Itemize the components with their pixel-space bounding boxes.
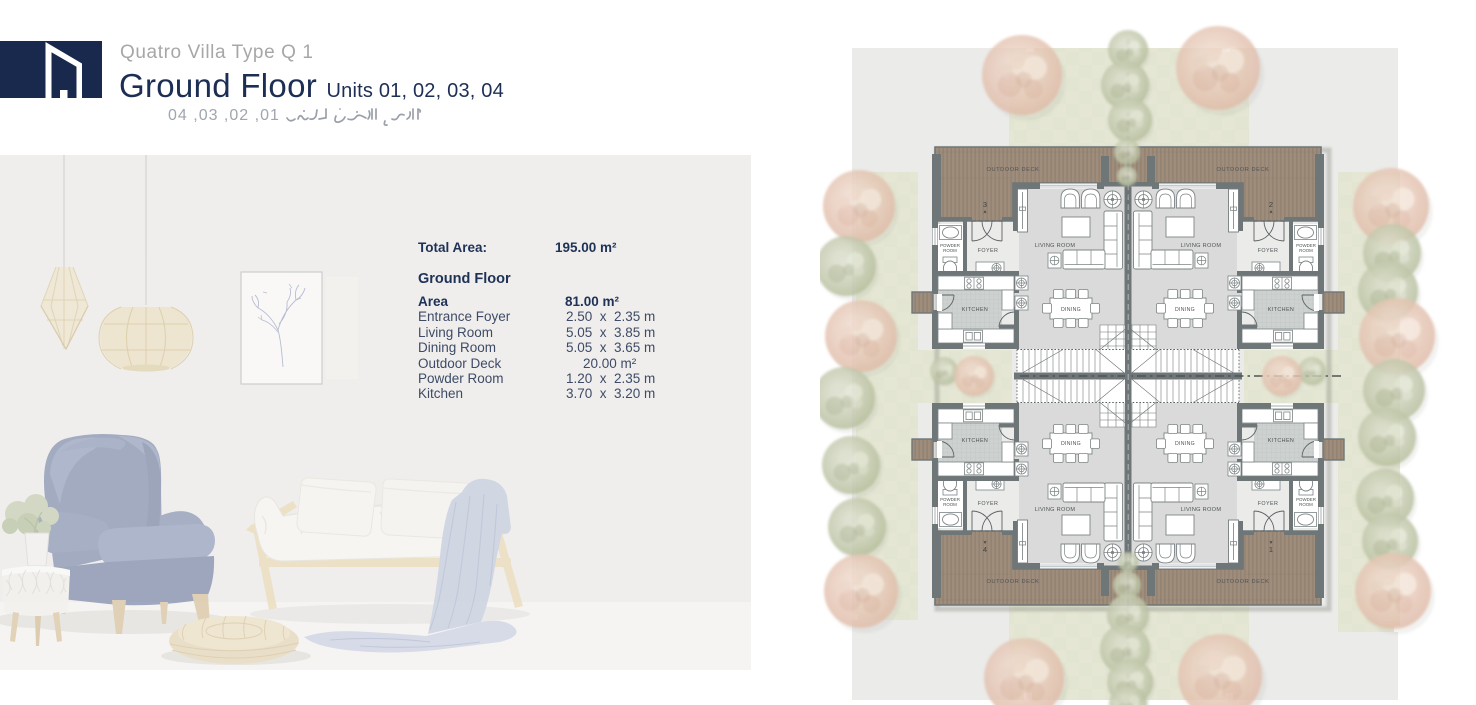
svg-text:DINING: DINING (1175, 307, 1195, 313)
svg-text:FOYER: FOYER (978, 501, 999, 507)
svg-text:FOYER: FOYER (1258, 248, 1279, 254)
svg-text:ROOM: ROOM (1299, 248, 1313, 253)
svg-text:LIVING ROOM: LIVING ROOM (1181, 243, 1222, 249)
svg-text:1: 1 (1269, 545, 1273, 554)
svg-text:3: 3 (983, 200, 987, 209)
svg-text:LIVING ROOM: LIVING ROOM (1035, 507, 1076, 513)
svg-text:4: 4 (983, 545, 987, 554)
svg-text:FOYER: FOYER (1258, 501, 1279, 507)
svg-text:2: 2 (1269, 200, 1273, 209)
svg-text:LIVING ROOM: LIVING ROOM (1181, 507, 1222, 513)
svg-text:KITCHEN: KITCHEN (962, 438, 988, 444)
svg-text:DINING: DINING (1175, 441, 1195, 447)
svg-text:KITCHEN: KITCHEN (1268, 307, 1294, 313)
svg-text:FOYER: FOYER (978, 248, 999, 254)
svg-text:04 ,03 ,02 ,01: 04 ,03 ,02 ,01 (168, 107, 280, 124)
svg-text:OUTDOOR DECK: OUTDOOR DECK (1217, 167, 1270, 173)
svg-text:ROOM: ROOM (943, 248, 957, 253)
svg-text:DINING: DINING (1061, 307, 1081, 313)
svg-text:DINING: DINING (1061, 441, 1081, 447)
svg-text:OUTDOOR DECK: OUTDOOR DECK (987, 167, 1040, 173)
svg-text:OUTDOOR DECK: OUTDOOR DECK (1217, 579, 1270, 585)
svg-text:LIVING ROOM: LIVING ROOM (1035, 243, 1076, 249)
svg-text:ROOM: ROOM (943, 502, 957, 507)
svg-text:KITCHEN: KITCHEN (1268, 438, 1294, 444)
svg-text:OUTDOOR DECK: OUTDOOR DECK (987, 579, 1040, 585)
svg-text:KITCHEN: KITCHEN (962, 307, 988, 313)
svg-text:ROOM: ROOM (1299, 502, 1313, 507)
